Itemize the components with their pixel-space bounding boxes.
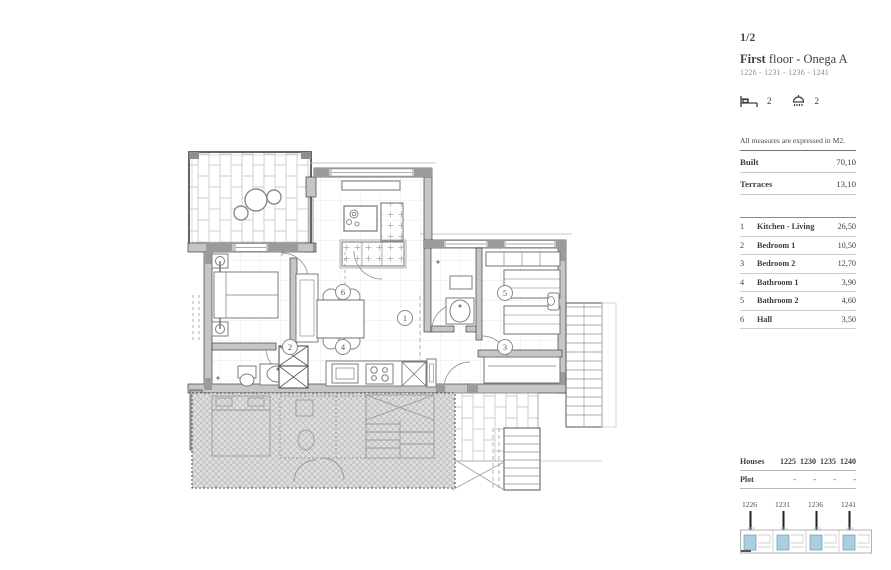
table-row: Terraces 13,10 — [740, 173, 856, 195]
shower-icon — [791, 94, 806, 108]
room-index: 4 — [740, 278, 757, 287]
kitchen-strip — [326, 359, 436, 387]
neighbour-unit — [192, 393, 455, 488]
room-index: 5 — [740, 296, 757, 305]
page-title: First floor - Onega A — [740, 52, 848, 67]
plot-label: Plot — [740, 475, 776, 484]
site-unit-number: 1241 — [841, 500, 856, 509]
bathrooms-count: 2 — [815, 96, 820, 106]
room-label-5: 5 — [503, 288, 507, 298]
stairs-right — [566, 303, 616, 427]
house-number: 1235 — [816, 457, 836, 466]
table-row: 1 Kitchen - Living 26,50 — [740, 218, 856, 237]
table-row: 3 Bedroom 2 12,70 — [740, 255, 856, 274]
site-unit-number: 1236 — [808, 500, 823, 509]
room-name: Bedroom 1 — [757, 241, 838, 250]
room-index: 2 — [740, 241, 757, 250]
measures-note: All measures are expressed in M2. — [740, 136, 845, 145]
room-name: Hall — [757, 315, 842, 324]
room-name: Bathroom 1 — [757, 278, 842, 287]
site-unit-number: 1226 — [742, 500, 757, 509]
room-index: 6 — [740, 315, 757, 324]
page-title-rest: floor - Onega A — [766, 52, 848, 66]
rooms-table: 1 Kitchen - Living 26,50 2 Bedroom 1 10,… — [740, 217, 856, 329]
house-number: 1225 — [776, 457, 796, 466]
house-number: 1240 — [836, 457, 856, 466]
room-area: 4,60 — [842, 296, 856, 305]
house-number: 1230 — [796, 457, 816, 466]
table-row: 2 Bedroom 1 10,50 — [740, 237, 856, 256]
terrace — [189, 152, 311, 245]
table-row: 6 Hall 3,50 — [740, 311, 856, 330]
houses-table: Houses 1225 1230 1235 1240 Plot - - - - — [740, 453, 856, 489]
room-index: 1 — [740, 222, 757, 231]
plot-value: - — [816, 475, 836, 484]
room-label-2: 2 — [288, 342, 292, 352]
exterior-access — [450, 393, 602, 490]
room-area: 10,50 — [838, 241, 856, 250]
area-value: 70,10 — [836, 157, 856, 167]
site-strip — [741, 528, 872, 553]
floorplan-page: 1 2 3 4 5 6 1/2 First floor - Onega A 12… — [0, 0, 891, 570]
area-label: Built — [740, 157, 759, 167]
room-label-1: 1 — [403, 313, 407, 323]
page-number: 1/2 — [740, 30, 755, 45]
room-name: Bathroom 2 — [757, 296, 842, 305]
plot-value: - — [796, 475, 816, 484]
room-index: 3 — [740, 259, 757, 268]
plot-value: - — [836, 475, 856, 484]
room-name: Bedroom 2 — [757, 259, 838, 268]
amenities-row: 2 2 — [740, 94, 829, 108]
unit-numbers-line: 1226 - 1231 - 1236 - 1241 — [740, 68, 829, 77]
room-label-6: 6 — [341, 287, 345, 297]
site-unit-number: 1231 — [775, 500, 790, 509]
room-area: 12,70 — [838, 259, 856, 268]
site-plan: 1226 1231 1236 1241 — [740, 498, 872, 561]
room-area: 3,50 — [842, 315, 856, 324]
page-title-bold: First — [740, 52, 766, 66]
room-label-3: 3 — [503, 342, 507, 352]
room-area: 26,50 — [838, 222, 856, 231]
table-row: Plot - - - - — [740, 471, 856, 489]
table-row: 4 Bathroom 1 3,90 — [740, 274, 856, 293]
area-label: Terraces — [740, 179, 772, 189]
room-area: 3,90 — [842, 278, 856, 287]
room-name: Kitchen - Living — [757, 222, 838, 231]
bed-icon — [740, 95, 758, 108]
houses-label: Houses — [740, 457, 776, 466]
areas-table: Built 70,10 Terraces 13,10 — [740, 150, 856, 195]
table-row: Built 70,10 — [740, 151, 856, 173]
area-value: 13,10 — [836, 179, 856, 189]
bedrooms-count: 2 — [767, 96, 772, 106]
table-row: Houses 1225 1230 1235 1240 — [740, 453, 856, 471]
plot-value: - — [776, 475, 796, 484]
table-row: 5 Bathroom 2 4,60 — [740, 292, 856, 311]
